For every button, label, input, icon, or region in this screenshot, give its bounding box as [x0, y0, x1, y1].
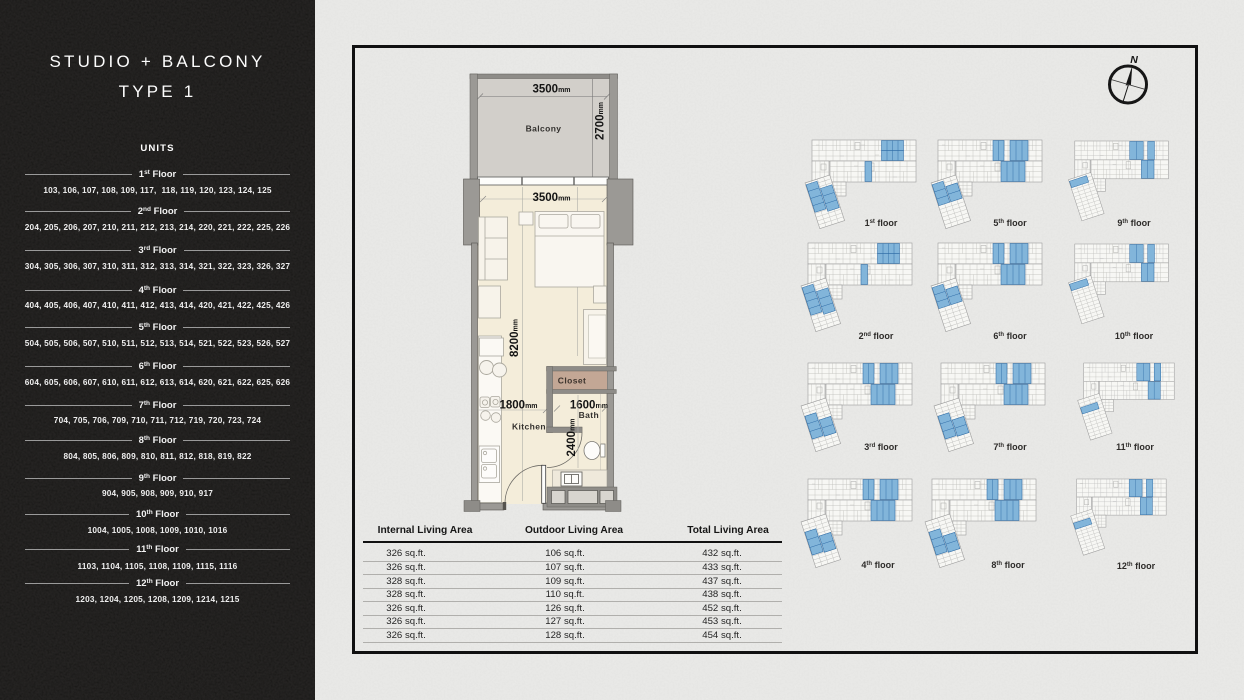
svg-text:Closet: Closet	[558, 376, 586, 386]
svg-text:11th floor: 11th floor	[1116, 442, 1154, 452]
svg-text:9th floor: 9th floor	[1117, 218, 1151, 228]
svg-text:12th floor: 12th floor	[1117, 561, 1156, 571]
svg-text:5th floor: 5th floor	[993, 218, 1027, 228]
svg-text:N: N	[1130, 54, 1138, 66]
svg-text:Kitchen: Kitchen	[512, 422, 546, 432]
svg-text:4th floor: 4th floor	[861, 560, 895, 570]
svg-text:6th floor: 6th floor	[993, 331, 1027, 341]
svg-text:8th floor: 8th floor	[991, 560, 1025, 570]
svg-text:Bath: Bath	[579, 410, 600, 420]
svg-text:3rd floor: 3rd floor	[864, 442, 898, 452]
svg-text:1st floor: 1st floor	[865, 218, 898, 228]
svg-text:2nd floor: 2nd floor	[859, 331, 894, 341]
svg-text:10th floor: 10th floor	[1115, 331, 1154, 341]
svg-text:7th floor: 7th floor	[993, 442, 1027, 452]
svg-text:Balcony: Balcony	[526, 124, 562, 134]
